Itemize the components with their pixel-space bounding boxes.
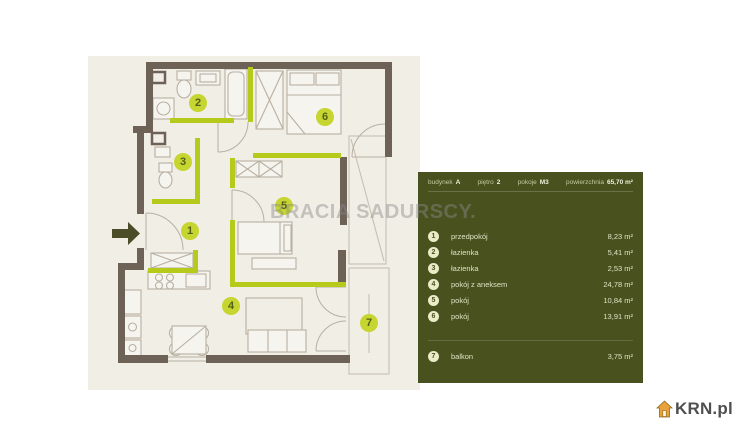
watermark: BRACIA SADURSCY. (270, 201, 500, 224)
plan-badge-3: 3 (174, 153, 192, 171)
room-name: balkon (451, 352, 608, 361)
room-row: 6 pokój 13,91 m² (428, 308, 633, 324)
building-field: budynekA (428, 179, 460, 186)
room-row: 1 przedpokój 8,23 m² (428, 228, 633, 244)
sofa (248, 330, 306, 352)
room-number-badge: 4 (428, 279, 439, 290)
pillow (284, 225, 291, 251)
toilet (177, 80, 191, 98)
small-sink (155, 147, 170, 157)
room-area: 5,41 m² (608, 248, 633, 257)
room-row: 4 pokój z aneksem 24,78 m² (428, 276, 633, 292)
room-name: łazienka (451, 264, 608, 273)
plan-badge-4: 4 (222, 297, 240, 315)
toilet-tank (177, 71, 191, 80)
panel-header: budynekA piętro2 pokojeM3 powierzchnia65… (418, 172, 643, 186)
cabinet (124, 316, 141, 338)
rooms-field: pokojeM3 (518, 179, 549, 186)
room-row: 7 balkon 3,75 m² (428, 348, 633, 364)
room-area: 24,78 m² (603, 280, 633, 289)
pillow (316, 73, 339, 85)
cabinet (124, 340, 141, 356)
room-area: 13,91 m² (603, 312, 633, 321)
room-number-badge: 1 (428, 231, 439, 242)
room-number-badge: 3 (428, 263, 439, 274)
list-divider (428, 340, 633, 341)
room-name: pokój (451, 296, 603, 305)
plan-badge-1: 1 (181, 222, 199, 240)
room-number-badge: 2 (428, 247, 439, 258)
toilet-tank (159, 163, 172, 172)
room-name: przedpokój (451, 232, 608, 241)
room-row: 3 łazienka 2,53 m² (428, 260, 633, 276)
plan-badge-6: 6 (316, 108, 334, 126)
room-name: pokój (451, 312, 603, 321)
pillow (290, 73, 314, 85)
room-name: łazienka (451, 248, 608, 257)
room-row: 2 łazienka 5,41 m² (428, 244, 633, 260)
room-row: 5 pokój 10,84 m² (428, 292, 633, 308)
room-area: 10,84 m² (603, 296, 633, 305)
room-name: pokój z aneksem (451, 280, 603, 289)
floorplan-page: 1234567 BRACIA SADURSCY. budynekA piętro… (0, 0, 740, 431)
room-number-badge: 7 (428, 351, 439, 362)
room-number-badge: 6 (428, 311, 439, 322)
krn-logo: KRN.pl (656, 399, 733, 419)
floor-field: piętro2 (478, 179, 501, 186)
room-area: 3,75 m² (608, 352, 633, 361)
room-list: 1 przedpokój 8,23 m² 2 łazienka 5,41 m² … (428, 228, 633, 364)
house-icon (656, 400, 673, 418)
dresser (252, 258, 296, 269)
room-number-badge: 5 (428, 295, 439, 306)
toilet (159, 172, 172, 188)
room-area: 8,23 m² (608, 232, 633, 241)
krn-logo-text: KRN.pl (675, 399, 733, 419)
fridge (124, 290, 141, 314)
room-area: 2,53 m² (608, 264, 633, 273)
plan-badge-2: 2 (189, 94, 207, 112)
area-field: powierzchnia65,70 m² (566, 179, 633, 186)
header-separator (428, 191, 633, 192)
kitchen-sink (186, 274, 206, 287)
plan-badge-7: 7 (360, 314, 378, 332)
